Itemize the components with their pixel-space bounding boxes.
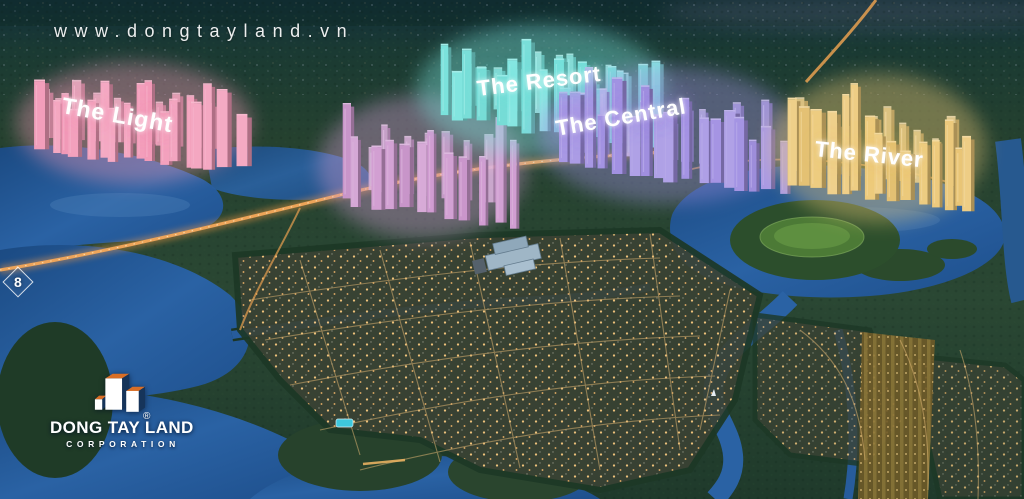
- tower-block: [399, 145, 409, 207]
- tower-roof: [945, 119, 954, 121]
- logo-building-tall: [105, 374, 129, 410]
- tower-window-stripe: [373, 151, 374, 206]
- tower-roof: [962, 136, 971, 138]
- tower-window-stripe: [419, 147, 420, 208]
- tower-roof: [700, 117, 709, 119]
- tower-roof: [507, 59, 517, 61]
- tower-block: [385, 141, 394, 209]
- tower-block: [237, 116, 248, 167]
- tower-side: [394, 143, 397, 209]
- tower-window-stripe: [947, 125, 948, 206]
- tower-side: [940, 144, 943, 208]
- tower-roof: [734, 117, 744, 119]
- tower-roof: [156, 102, 163, 104]
- tower-roof: [351, 136, 358, 138]
- tower-roof: [385, 140, 394, 142]
- tower-roof: [955, 148, 962, 150]
- tower-window-stripe: [387, 145, 388, 205]
- tower-block: [799, 108, 810, 186]
- tower-roof: [842, 94, 849, 96]
- tower-roof: [887, 141, 896, 143]
- tower-roof: [865, 116, 875, 118]
- tower-block: [788, 99, 797, 185]
- tower-window-stripe: [36, 85, 37, 145]
- tower-window-stripe: [401, 149, 402, 203]
- tower-block: [479, 158, 486, 226]
- tower-side: [410, 147, 414, 207]
- tower-roof: [556, 55, 563, 57]
- tower-roof: [101, 81, 110, 83]
- tower-window-stripe: [205, 89, 206, 166]
- tower-side: [45, 83, 49, 149]
- tower-side: [228, 93, 232, 168]
- tower-window-stripe: [751, 145, 752, 187]
- tower-window-stripe: [632, 122, 633, 172]
- tower-side: [472, 52, 476, 118]
- tower-window-stripe: [460, 162, 461, 217]
- tower-roof: [827, 111, 837, 113]
- tower-side: [50, 93, 54, 138]
- tower-roof: [534, 51, 542, 53]
- tower-roof: [874, 133, 882, 135]
- tower-roof: [810, 109, 821, 111]
- tower-block: [53, 102, 60, 153]
- tower-window-stripe: [789, 103, 790, 181]
- tower-window-stripe: [188, 101, 189, 164]
- tower-window-stripe: [852, 89, 853, 187]
- tower-block: [724, 112, 735, 188]
- tower-roof: [570, 92, 581, 94]
- tower-roof: [444, 152, 453, 154]
- tower-block: [932, 142, 940, 208]
- tower-block: [441, 45, 449, 115]
- tower-block: [343, 105, 351, 199]
- tower-roof: [203, 83, 212, 85]
- tower-window-stripe: [352, 142, 353, 203]
- tower-roof: [761, 126, 771, 128]
- tower-side: [928, 145, 931, 204]
- tower-roof: [913, 130, 920, 132]
- watermark-url: www.dongtayland.vn: [54, 21, 354, 42]
- tower-block: [459, 158, 467, 221]
- tower-window-stripe: [712, 124, 713, 179]
- tower-window-stripe: [763, 132, 764, 186]
- tower-side: [178, 102, 181, 161]
- tower-roof: [381, 124, 388, 126]
- tower-roof: [554, 58, 564, 60]
- tower-roof: [399, 144, 409, 146]
- tower-roof: [522, 39, 532, 41]
- tower-roof: [477, 67, 487, 69]
- tower-side: [467, 160, 470, 221]
- tower-side: [448, 47, 451, 115]
- page-number: 8: [14, 274, 22, 290]
- tower-window-stripe: [454, 77, 455, 117]
- tower-roof: [191, 102, 202, 104]
- swimming-pool: [336, 419, 353, 427]
- tower-block: [955, 149, 962, 206]
- tower-block: [191, 103, 202, 168]
- tower-window-stripe: [812, 115, 813, 184]
- river-right-edge: [1008, 140, 1024, 300]
- tower-window-stripe: [736, 122, 737, 187]
- tower-window-stripe: [446, 158, 447, 215]
- tower-roof: [53, 100, 60, 102]
- tower-side: [674, 115, 678, 182]
- tower-roof: [417, 142, 426, 144]
- tower-window-stripe: [429, 136, 430, 209]
- tower-window-stripe: [701, 123, 702, 179]
- tower-block: [444, 154, 453, 219]
- tower-roof: [343, 103, 351, 105]
- tower-window-stripe: [345, 109, 346, 195]
- tower-roof: [72, 80, 81, 82]
- tower-roof: [479, 156, 486, 158]
- tower-window-stripe: [957, 153, 958, 202]
- tower-roof: [724, 110, 735, 112]
- tower-block: [462, 50, 472, 118]
- tower-side: [517, 143, 520, 228]
- tower-window-stripe: [193, 107, 194, 164]
- water-reflection-left: [50, 193, 190, 217]
- tower-block: [34, 81, 45, 149]
- tower-side: [971, 140, 975, 212]
- tower-roof: [559, 92, 568, 94]
- tower-block: [711, 120, 722, 183]
- tower-roof: [34, 80, 45, 82]
- tower-roof: [799, 106, 810, 108]
- tower-roof: [93, 93, 101, 95]
- tower-roof: [788, 98, 797, 100]
- tower-roof: [919, 142, 927, 144]
- tower-block: [761, 128, 771, 190]
- tower-roof: [441, 44, 449, 46]
- tower-window-stripe: [481, 162, 482, 222]
- tower-block: [700, 119, 709, 183]
- tower-roof: [932, 138, 939, 140]
- tower-roof: [638, 64, 648, 66]
- tower-side: [757, 143, 760, 191]
- tower-roof: [169, 99, 177, 101]
- tower-window-stripe: [801, 112, 802, 182]
- tower-roof: [733, 102, 741, 104]
- tower-roof: [237, 114, 248, 116]
- tower-roof: [494, 67, 503, 69]
- tower-side: [382, 149, 386, 210]
- tower-roof: [145, 80, 153, 82]
- tower-block: [452, 73, 463, 121]
- buildings-logo-icon: [91, 368, 151, 416]
- tower-window-stripe: [964, 142, 965, 208]
- logo-building-small: [95, 396, 106, 410]
- tower-window-stripe: [628, 126, 629, 153]
- tower-roof: [427, 130, 434, 132]
- tower-window-stripe: [726, 116, 727, 184]
- dong-tay-land-logo: ® DONG TAY LAND CORPORATION: [50, 368, 192, 449]
- tower-window-stripe: [656, 120, 657, 174]
- tower-block: [427, 132, 434, 213]
- tower-block: [851, 85, 859, 191]
- park-lawn-inner: [774, 223, 850, 249]
- tower-roof: [187, 95, 195, 97]
- tower-roof: [114, 98, 121, 100]
- logo-subtitle: CORPORATION: [50, 439, 192, 449]
- tower-block: [945, 121, 954, 210]
- tower-block: [962, 138, 971, 212]
- tower-roof: [371, 146, 381, 148]
- tower-roof: [404, 136, 411, 138]
- tower-roof: [711, 118, 722, 120]
- tower-block: [663, 113, 673, 182]
- tower-roof: [452, 71, 463, 73]
- tower-window-stripe: [219, 95, 220, 164]
- tower-roof: [749, 140, 757, 142]
- lake-islet: [927, 239, 977, 259]
- tower-roof: [851, 83, 859, 85]
- tower-roof: [612, 77, 623, 79]
- registered-trademark-symbol: ®: [143, 411, 150, 422]
- tower-roof: [652, 61, 661, 63]
- logo-company-name: DONG TAY LAND: [50, 418, 192, 438]
- tower-block: [417, 143, 426, 212]
- logo-building-mid: [126, 387, 145, 412]
- tower-roof: [566, 54, 573, 56]
- tower-side: [858, 87, 861, 191]
- tower-window-stripe: [464, 54, 465, 114]
- tower-roof: [761, 100, 769, 102]
- tower-roof: [899, 123, 906, 125]
- tower-roof: [137, 83, 146, 85]
- tower-roof: [932, 140, 940, 142]
- tower-side: [248, 118, 252, 167]
- tower-block: [371, 147, 381, 210]
- tower-block: [217, 91, 228, 168]
- tower-roof: [172, 93, 180, 95]
- tower-side: [434, 134, 437, 213]
- tower-block: [203, 85, 212, 170]
- tower-side: [454, 156, 458, 219]
- tower-roof: [459, 156, 467, 158]
- tower-block: [351, 138, 358, 207]
- tower-roof: [947, 116, 956, 118]
- tower-roof: [883, 106, 891, 108]
- tower-side: [358, 140, 361, 207]
- tower-block: [734, 118, 744, 191]
- tower-window-stripe: [443, 137, 444, 195]
- tower-side: [212, 87, 215, 170]
- tower-roof: [641, 85, 649, 87]
- tower-window-stripe: [55, 106, 56, 149]
- tower-window-stripe: [665, 117, 666, 178]
- tower-side: [744, 120, 748, 191]
- tower-window-stripe: [238, 120, 239, 163]
- tower-roof: [600, 88, 607, 90]
- tower-block: [749, 141, 757, 191]
- tower-roof: [217, 89, 228, 91]
- masterplan-render: www.dongtayland.vn The Light The Resort …: [0, 0, 1024, 499]
- tower-window-stripe: [512, 145, 513, 224]
- tower-side: [486, 160, 489, 226]
- tower-side: [689, 101, 692, 178]
- tower-window-stripe: [443, 49, 444, 111]
- tower-roof: [462, 49, 472, 51]
- tower-window-stripe: [934, 146, 935, 204]
- tower-roof: [608, 66, 617, 68]
- tower-roof: [699, 109, 706, 111]
